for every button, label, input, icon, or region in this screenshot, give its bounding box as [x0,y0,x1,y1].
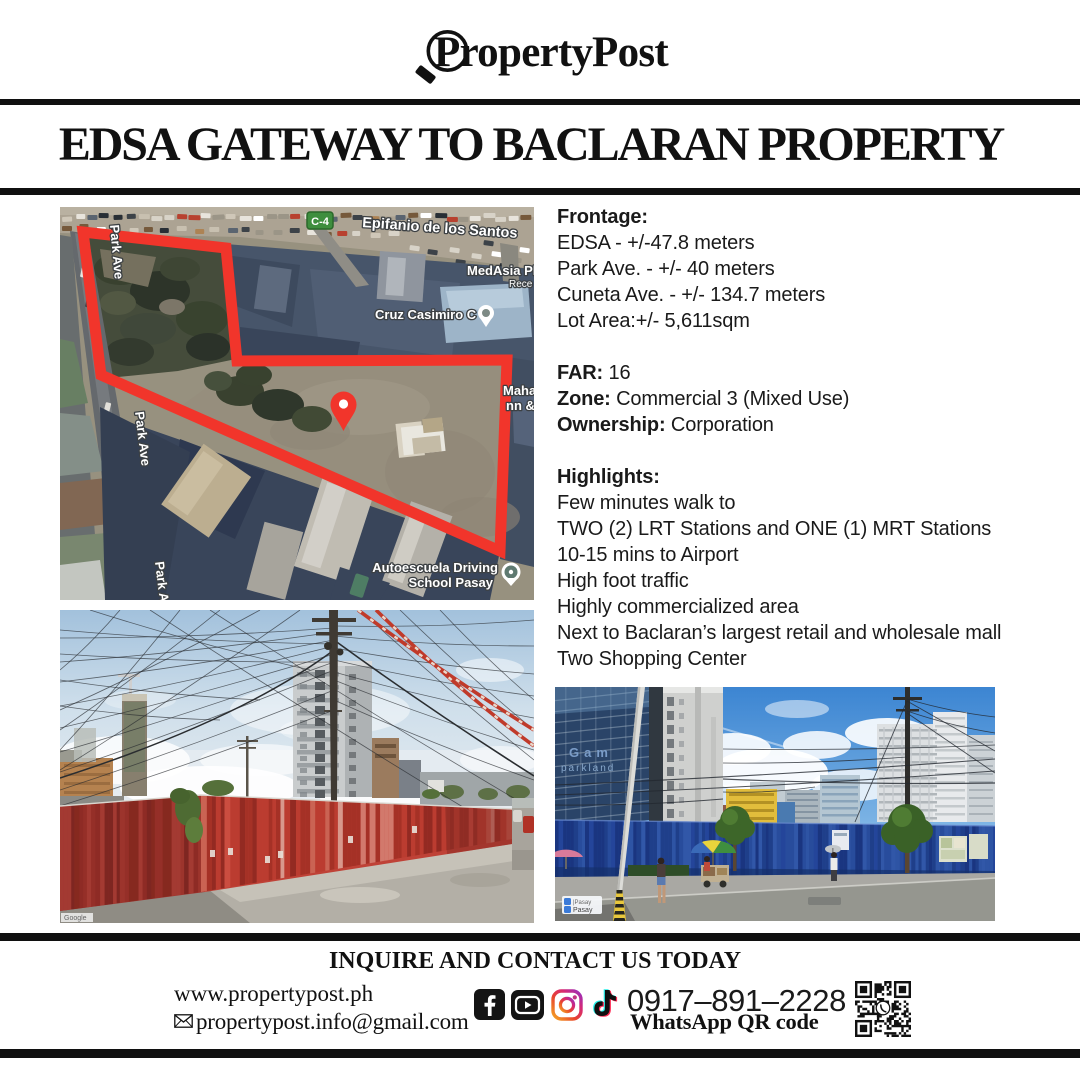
svg-text:Autoescuela Driving: Autoescuela Driving [372,560,498,575]
svg-text:nn &: nn & [506,398,534,413]
svg-text:Google: Google [64,915,87,922]
svg-text:Cruz Casimiro C: Cruz Casimiro C [375,307,477,322]
svg-text:Pasay: Pasay [573,907,593,914]
svg-text:|Pasay: |Pasay [573,900,591,906]
svg-text:C-4: C-4 [311,216,330,228]
svg-text:Rece: Rece [509,279,533,290]
svg-text:MedAsia Ph: MedAsia Ph [467,263,534,278]
svg-text:Maha: Maha [503,383,534,398]
svg-text:parkland: parkland [561,763,615,774]
svg-text:School Pasay: School Pasay [408,575,493,590]
svg-text:Gam: Gam [569,745,613,760]
svg-text:Post: Post [592,29,669,76]
svg-text:Property: Property [434,29,594,76]
